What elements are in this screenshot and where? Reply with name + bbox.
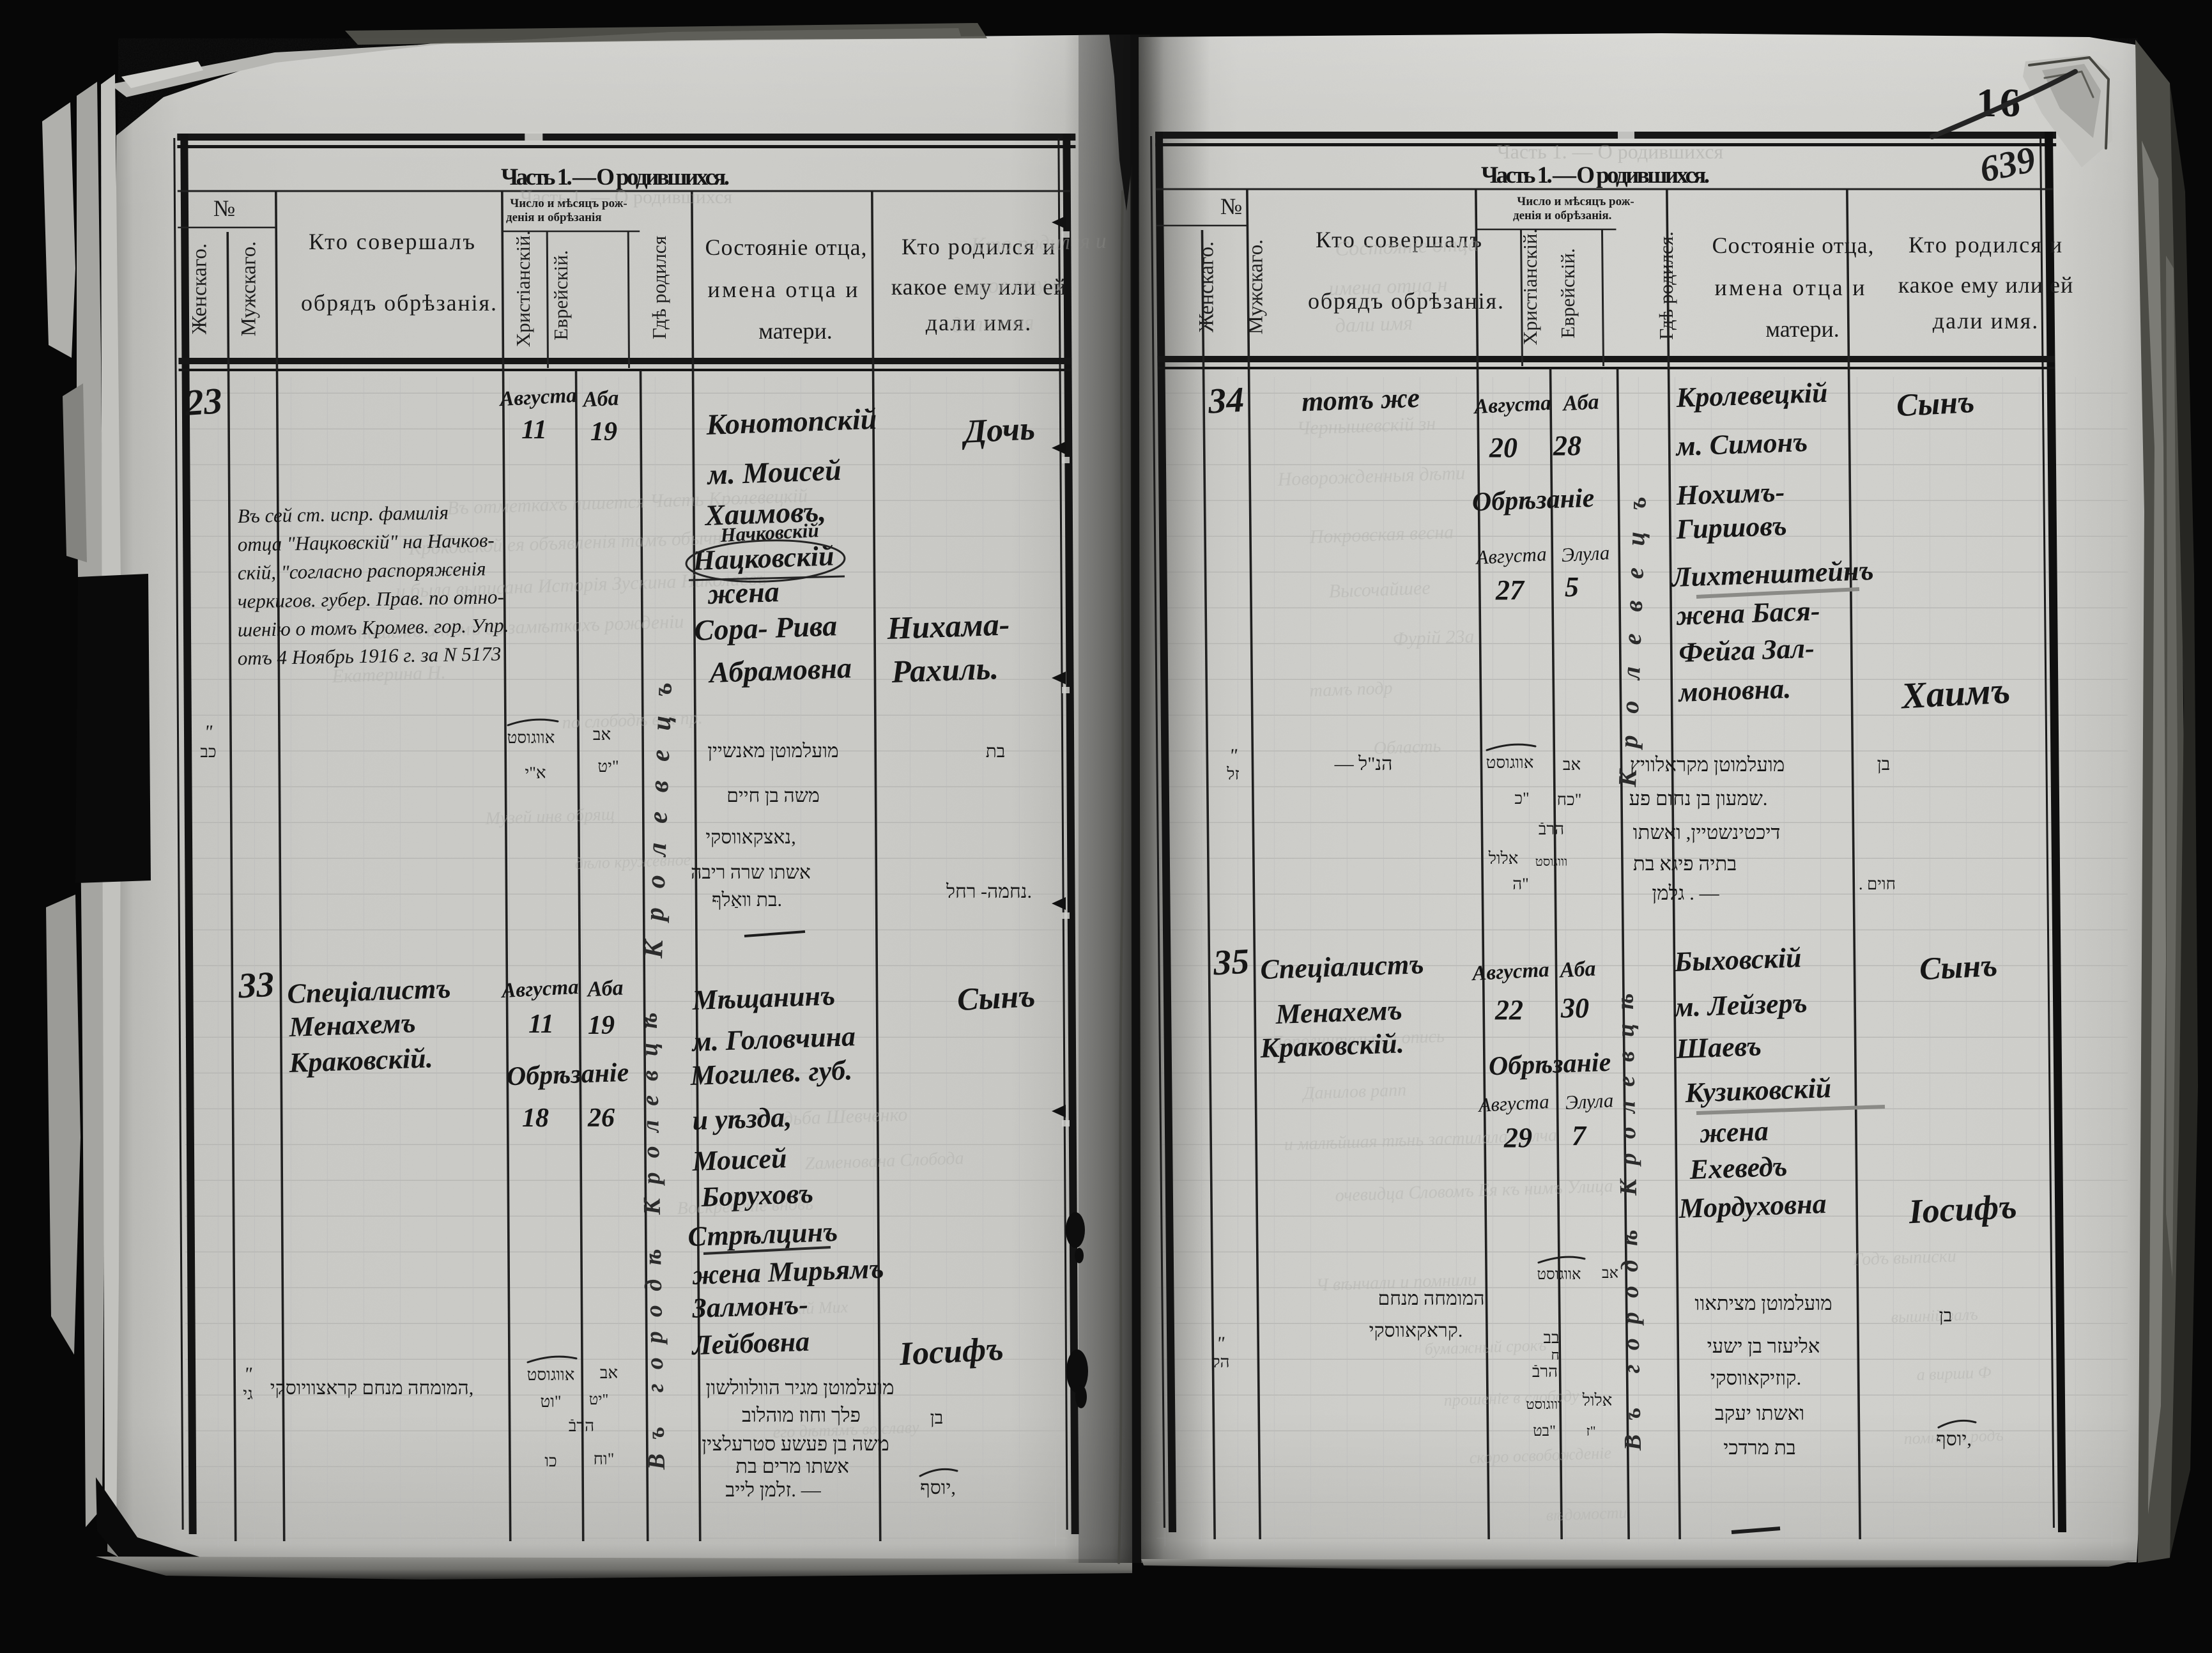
svg-text:Элула: Элула — [1565, 1089, 1614, 1114]
svg-text:Кузиковскій: Кузиковскій — [1684, 1072, 1832, 1109]
svg-text:Рахиль.: Рахиль. — [890, 650, 999, 689]
svg-text:מועלמוטן מגיר הוולוולשון: מועלמוטן מגיר הוולוולשון — [705, 1376, 894, 1399]
svg-text:Нохимъ-: Нохимъ- — [1675, 476, 1785, 511]
svg-text:ה": ה" — [1512, 875, 1529, 893]
svg-text:אב: אב — [1602, 1265, 1618, 1282]
svg-text:Годъ выписки: Годъ выписки — [1852, 1246, 1956, 1270]
svg-text:אלול: אלול — [1582, 1391, 1613, 1410]
svg-text:קראקאווסקי.: קראקאווסקי. — [1369, 1320, 1463, 1341]
svg-text:Данилов рапп: Данилов рапп — [1301, 1080, 1406, 1103]
svg-text:זל: זל — [1226, 765, 1239, 783]
svg-text:жена Бася-: жена Бася- — [1675, 595, 1821, 631]
svg-text:Аба: Аба — [1558, 957, 1596, 983]
svg-text:Еврейскій.: Еврейскій. — [1556, 248, 1579, 338]
svg-text:א"י: א"י — [525, 764, 546, 782]
svg-text:Августа: Августа — [1477, 1090, 1549, 1116]
svg-text:какое ему или ей: какое ему или ей — [1898, 272, 2074, 298]
svg-text:בת װאַלףּ.: בת װאַלףּ. — [712, 889, 782, 911]
svg-text:יט": יט" — [597, 757, 618, 776]
svg-text:обрядъ обрѣзанія.: обрядъ обрѣзанія. — [301, 290, 496, 316]
svg-text:черкигов. губер. Прав. по отно: черкигов. губер. Прав. по отно- — [238, 585, 505, 612]
svg-text:34: 34 — [1206, 380, 1245, 422]
svg-text:Іосифъ: Іосифъ — [1907, 1187, 2018, 1231]
svg-text:Абрамовна: Абрамовна — [707, 651, 852, 689]
svg-text:Кто родился и: Кто родился и — [1909, 232, 2063, 258]
svg-text:": " — [1229, 745, 1238, 766]
svg-text:Краковскій.: Краковскій. — [288, 1042, 434, 1079]
svg-text:Сынъ: Сынъ — [1896, 383, 1976, 423]
svg-text:Спеціалистъ: Спеціалистъ — [287, 973, 452, 1010]
svg-text:Краковскій.: Краковскій. — [1259, 1027, 1405, 1064]
svg-text:הרבֿ: הרבֿ — [569, 1417, 594, 1435]
svg-text:26: 26 — [587, 1103, 615, 1133]
svg-text:20: 20 — [1489, 432, 1517, 463]
svg-text:Часть 1. — О родившихся.: Часть 1. — О родившихся. — [501, 164, 730, 190]
svg-text:дали имя: дали имя — [951, 311, 1034, 337]
svg-text:Ехеведъ: Ехеведъ — [1689, 1151, 1788, 1185]
svg-text:Обрѣзаніе: Обрѣзаніе — [1488, 1048, 1611, 1082]
svg-text:יוסף,: יוסף, — [920, 1477, 956, 1498]
svg-text:11: 11 — [528, 1010, 554, 1039]
svg-text:Лейбовна: Лейбовна — [691, 1326, 810, 1361]
svg-text:какое ему и: какое ему и — [958, 272, 1063, 299]
svg-text:м. Моисей: м. Моисей — [706, 454, 842, 491]
svg-text:בן: בן — [1877, 755, 1891, 774]
svg-text:Высочайшее: Высочайшее — [1328, 577, 1431, 602]
svg-text:Моисей: Моисей — [691, 1142, 788, 1177]
svg-text:": " — [204, 721, 213, 742]
svg-text:אלול: אלול — [1488, 849, 1519, 868]
svg-text:22: 22 — [1494, 994, 1523, 1026]
svg-text:5: 5 — [1565, 571, 1579, 603]
svg-text:Часть 1. — О родившихся.: Часть 1. — О родившихся. — [1481, 162, 1710, 188]
svg-text:Число и мѣсяцъ рож-: Число и мѣсяцъ рож- — [510, 197, 627, 210]
svg-text:הק: הק — [1211, 1353, 1230, 1371]
svg-text:אווגוסט: אווגוסט — [527, 1365, 575, 1384]
svg-text:жена: жена — [1699, 1115, 1769, 1149]
svg-text:№: № — [1220, 194, 1242, 219]
svg-text:Женскаго.: Женскаго. — [1195, 242, 1218, 333]
svg-text:Обрѣзаніе: Обрѣзаніе — [1471, 484, 1595, 518]
svg-text:— הנ"ל: — הנ"ל — [1334, 753, 1393, 774]
svg-text:Конотопскій: Конотопскій — [705, 403, 877, 441]
svg-text:משה בן חיים: משה בן חיים — [726, 785, 820, 806]
svg-text:הרבֿ: הרבֿ — [1532, 1362, 1558, 1381]
svg-text:дали имя: дали имя — [1335, 311, 1413, 337]
svg-text:вышній залъ: вышній залъ — [1891, 1305, 1978, 1326]
svg-text:נאצקאווסקי,: נאצקאווסקי, — [705, 827, 795, 848]
svg-text:אב: אב — [600, 1364, 618, 1382]
svg-text:Шаевъ: Шаевъ — [1675, 1030, 1762, 1065]
svg-text:м. Симонъ: м. Симонъ — [1675, 426, 1808, 462]
svg-text:Христіанскій.: Христіанскій. — [512, 231, 534, 348]
svg-text:Аба: Аба — [581, 387, 619, 412]
svg-text:בן: בן — [930, 1408, 944, 1428]
svg-text:Быховскій: Быховскій — [1673, 942, 1802, 978]
svg-text:Гиршовъ: Гиршовъ — [1675, 510, 1788, 545]
svg-text:Августа: Августа — [500, 976, 579, 1003]
svg-text:": " — [1217, 1333, 1225, 1354]
svg-text:יוסף,: יוסף, — [1936, 1429, 1972, 1450]
svg-text:Менахемъ: Менахемъ — [288, 1007, 417, 1043]
svg-text:Могилев. губ.: Могилев. губ. — [689, 1054, 853, 1091]
svg-text:אשתו מרים בת: אשתו מרים בת — [735, 1455, 849, 1477]
svg-text:имена отца и: имена отца и — [1715, 275, 1865, 300]
svg-text:אווגוסט: אווגוסט — [1486, 753, 1534, 772]
svg-text:имена отца и: имена отца и — [708, 277, 858, 302]
svg-text:המומחה מנחם: המומחה מנחם — [1378, 1288, 1484, 1309]
svg-text:а вирши Ф: а вирши Ф — [1916, 1363, 1992, 1384]
svg-text:Мужскаго.: Мужскаго. — [238, 241, 261, 336]
svg-text:33: 33 — [236, 965, 275, 1006]
svg-text:Спеціалистъ: Спеціалистъ — [1260, 948, 1425, 985]
svg-text:№: № — [213, 196, 235, 221]
svg-text:מועלמוטן מציתאוו: מועלמוטן מציתאוו — [1694, 1292, 1832, 1314]
svg-text:Залмонъ-: Залмонъ- — [691, 1289, 809, 1324]
svg-text:נחמה- רחל.: נחמה- רחל. — [946, 881, 1032, 902]
svg-text:матери.: матери. — [1765, 316, 1839, 342]
svg-text:יט": יט" — [589, 1392, 609, 1408]
svg-text:28: 28 — [1553, 430, 1581, 461]
svg-text:Менахемъ: Менахемъ — [1275, 994, 1403, 1030]
svg-text:Фейга Зал-: Фейга Зал- — [1678, 633, 1815, 668]
svg-text:Дочь: Дочь — [960, 410, 1036, 450]
svg-text:матери.: матери. — [758, 318, 833, 344]
svg-text:וט": וט" — [541, 1392, 562, 1411]
svg-text:Аба: Аба — [1561, 390, 1599, 416]
svg-text:אב: אב — [1563, 755, 1581, 774]
svg-text:23: 23 — [183, 380, 223, 424]
svg-text:Состояніе отца,: Состояніе отца, — [1712, 233, 1874, 258]
svg-text:Сынъ: Сынъ — [956, 978, 1036, 1017]
svg-text:בתיה פיגא בת: בתיה פיגא בת — [1633, 852, 1737, 875]
svg-text:Число и мѣсяцъ рож-: Число и мѣсяцъ рож- — [1517, 195, 1634, 208]
svg-text:בן: בן — [1939, 1306, 1953, 1326]
svg-text:29: 29 — [1503, 1122, 1532, 1153]
svg-text:Въ сей ст. испр. фамилія: Въ сей ст. испр. фамилія — [238, 501, 449, 527]
svg-text:отца "Нацковскій" на Начков-: отца "Нацковскій" на Начков- — [238, 528, 495, 555]
svg-text:שמעון בן נחום פע.: שמעון בן נחום פע. — [1629, 787, 1767, 810]
svg-text:Августа: Августа — [498, 384, 577, 411]
svg-text:моновна.: моновна. — [1677, 673, 1792, 708]
svg-text:Боруховъ: Боруховъ — [700, 1178, 814, 1213]
svg-text:Нихама-: Нихама- — [886, 606, 1010, 646]
svg-text:ח: ח — [1551, 1347, 1559, 1363]
svg-text:Фурій 23а: Фурій 23а — [1392, 626, 1475, 650]
svg-text:אווגוסט: אווגוסט — [1537, 1266, 1581, 1283]
svg-text:Нацковскій: Нацковскій — [692, 540, 835, 576]
svg-text:Кто совершалъ: Кто совершалъ — [309, 229, 475, 254]
svg-text:Состояніе отца,: Состояніе отца, — [705, 234, 867, 260]
svg-text:וח": וח" — [594, 1450, 615, 1468]
svg-text:כ": כ" — [1514, 789, 1529, 808]
svg-text:קוזיקאווסקי.: קוזיקאווסקי. — [1710, 1367, 1801, 1389]
svg-text:Сора- Рива: Сора- Рива — [694, 609, 838, 647]
svg-text:בט": בט" — [1533, 1423, 1556, 1440]
svg-text:בת מרדכי: בת מרדכי — [1723, 1436, 1795, 1459]
svg-text:шенію о томъ Кромев. гор. Упр.: шенію о томъ Кромев. гор. Упр. — [238, 614, 509, 641]
svg-text:": " — [244, 1364, 252, 1385]
svg-text:משה בן פעשע סטרעלצין: משה בן פעשע סטרעלצין — [702, 1433, 889, 1455]
svg-text:Сынъ: Сынъ — [1919, 947, 1999, 987]
svg-text:Хаимъ: Хаимъ — [1899, 670, 2011, 717]
svg-text:отъ 4 Ноябрь 1916 г. за N 5173: отъ 4 Ноябрь 1916 г. за N 5173 — [238, 642, 502, 669]
svg-text:7: 7 — [1572, 1120, 1587, 1151]
svg-text:Элула: Элула — [1561, 541, 1610, 566]
svg-text:אשתו שרה ריבה: אשתו שרה ריבה — [691, 862, 811, 883]
svg-text:דיכטינשטיין, ואשתו: דיכטינשטיין, ואשתו — [1633, 821, 1781, 843]
svg-text:וווגוסט: וווגוסט — [1535, 855, 1568, 869]
svg-text:Мѣщанинъ: Мѣщанинъ — [691, 980, 836, 1016]
svg-text:Женскаго.: Женскаго. — [188, 243, 211, 335]
svg-text:Августа: Августа — [1472, 392, 1551, 419]
svg-text:הרבֿ: הרבֿ — [1539, 820, 1564, 838]
svg-text:жена Мирьямъ: жена Мирьямъ — [691, 1253, 884, 1291]
svg-text:אב: אב — [593, 725, 611, 744]
svg-text:ואשתו יעקב: ואשתו יעקב — [1715, 1402, 1804, 1424]
svg-text:בת: בת — [986, 742, 1006, 762]
svg-text:פלך וחוז מוהלוב: פלך וחוז מוהלוב — [742, 1404, 861, 1426]
svg-text:тамъ подр: тамъ подр — [1309, 678, 1393, 701]
svg-text:Мордуховна: Мордуховна — [1678, 1188, 1827, 1224]
svg-text:Часть 1. — О родившихся: Часть 1. — О родившихся — [1497, 140, 1724, 163]
svg-text:גלמן . —: גלמן . — — [1652, 882, 1719, 904]
svg-text:11: 11 — [521, 415, 547, 445]
svg-text:Кролевецкій: Кролевецкій — [1675, 377, 1829, 413]
svg-text:Еврейскій.: Еврейскій. — [549, 250, 572, 340]
svg-text:м. Головчина: м. Головчина — [691, 1020, 856, 1057]
svg-text:גי: גי — [243, 1385, 252, 1403]
svg-text:Аба: Аба — [585, 976, 624, 1002]
svg-text:27: 27 — [1495, 574, 1525, 606]
svg-text:и уѣзда,: и уѣзда, — [692, 1102, 792, 1136]
svg-text:המומחה מנחם קראצוויוסקי,: המומחה מנחם קראצוויוסקי, — [270, 1378, 473, 1399]
svg-text:19: 19 — [590, 417, 617, 447]
svg-text:Августа: Августа — [1474, 542, 1547, 569]
svg-text:כב: כב — [200, 742, 216, 761]
svg-text:30: 30 — [1560, 992, 1589, 1024]
svg-text:Іосифъ: Іосифъ — [898, 1331, 1004, 1372]
svg-text:Августа: Августа — [1470, 958, 1549, 985]
svg-text:ז": ז" — [1586, 1423, 1595, 1439]
svg-text:כח": כח" — [1557, 790, 1582, 809]
svg-text:скій, "согласно распоряженія: скій, "согласно распоряженія — [238, 557, 486, 584]
svg-text:м. Лейзеръ: м. Лейзеръ — [1673, 987, 1808, 1023]
svg-text:19: 19 — [588, 1011, 615, 1040]
svg-text:тотъ же: тотъ же — [1301, 382, 1420, 417]
svg-text:имена отца н: имена отца н — [1328, 273, 1448, 300]
svg-text:אווגוסט: אווגוסט — [507, 728, 555, 747]
svg-text:35: 35 — [1211, 942, 1250, 983]
svg-text:זלמן לייב. —: זלמן לייב. — — [725, 1479, 821, 1501]
svg-text:Гдѣ родился.: Гдѣ родился. — [1655, 231, 1677, 340]
svg-text:אליעזר בן ישעי: אליעזר בן ישעי — [1707, 1335, 1820, 1357]
svg-text:וווגוסט: וווגוסט — [1526, 1396, 1562, 1412]
svg-text:מועלמוטן מאנשיין: מועלמוטן מאנשיין — [707, 741, 838, 762]
svg-text:כו: כו — [544, 1452, 557, 1470]
svg-text:מועלמוטן מקראלוויץ: מועלמוטן מקראלוויץ — [1630, 753, 1785, 776]
svg-text:дали имя.: дали имя. — [1933, 308, 2039, 334]
svg-text:18: 18 — [522, 1103, 549, 1133]
svg-text:Христіанскій.: Христіанскій. — [1519, 229, 1541, 346]
svg-text:Гдѣ родился: Гдѣ родился — [648, 236, 670, 339]
svg-text:вѣдомости: вѣдомости — [1546, 1503, 1627, 1525]
svg-text:денія и обрѣзанія: денія и обрѣзанія — [506, 211, 602, 224]
svg-text:Обрѣзаніе: Обрѣзаніе — [506, 1058, 629, 1092]
svg-text:בב: בב — [1543, 1328, 1559, 1347]
svg-text:Мужскаго.: Мужскаго. — [1245, 239, 1268, 334]
svg-text:. חוים: . חוים — [1859, 875, 1896, 893]
svg-text:денія и обрѣзанія.: денія и обрѣзанія. — [1513, 209, 1611, 222]
